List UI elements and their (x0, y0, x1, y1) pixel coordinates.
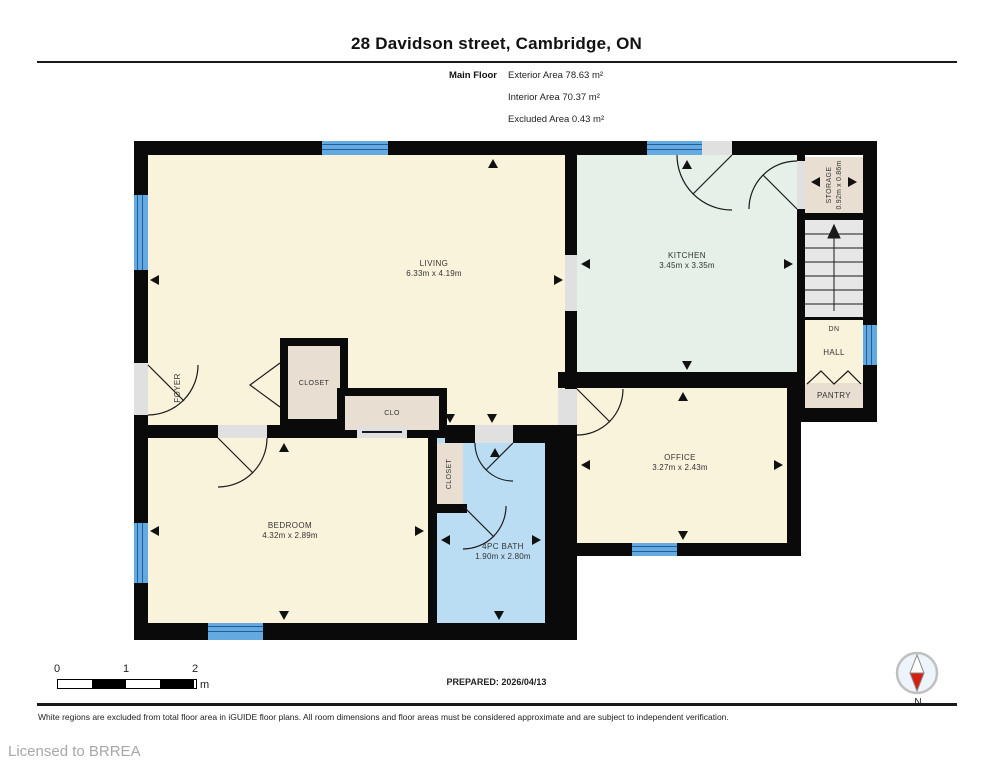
room-label-closet: CLOSET (289, 379, 339, 389)
room-label-living: LIVING 6.33m x 4.19m (364, 259, 504, 279)
plan-symbols-svg (134, 141, 877, 640)
room-name: BEDROOM (220, 521, 360, 531)
label-dn: DN (805, 325, 863, 335)
room-label-bedroom: BEDROOM 4.32m x 2.89m (220, 521, 360, 541)
room-name: STORAGE (825, 161, 835, 210)
room-label-office: OFFICE 3.27m x 2.43m (610, 453, 750, 473)
interior-area: Interior Area 70.37 m² (508, 92, 808, 103)
room-name: PANTRY (799, 391, 869, 401)
room-name: KITCHEN (617, 251, 757, 261)
room-name: LIVING (364, 259, 504, 269)
door-arcs (148, 155, 861, 549)
floor-label: Main Floor (0, 70, 497, 81)
disclaimer-text: White regions are excluded from total fl… (38, 712, 968, 722)
room-label-hall: HALL (805, 348, 863, 358)
room-label-foyer: FOYER (173, 373, 183, 403)
header-divider (37, 61, 957, 63)
room-name: OFFICE (610, 453, 750, 463)
room-name: 4PC BATH (433, 542, 573, 552)
room-dims: 3.45m x 3.35m (617, 261, 757, 271)
room-name: DN (805, 325, 863, 335)
room-name: HALL (805, 348, 863, 358)
floorplan: LIVING 6.33m x 4.19m KITCHEN 3.45m x 3.3… (134, 141, 877, 640)
room-dims: 1.90m x 2.80m (433, 552, 573, 562)
floorplan-page: 28 Davidson street, Cambridge, ON Main F… (0, 0, 993, 768)
stairs-direction-arrow (828, 225, 840, 238)
page-title: 28 Davidson street, Cambridge, ON (0, 34, 993, 54)
room-name: FOYER (173, 373, 183, 403)
room-label-clo: CLO (350, 409, 434, 419)
compass-icon (894, 650, 940, 696)
room-label-bath: 4PC BATH 1.90m x 2.80m (433, 542, 573, 562)
exterior-area: Exterior Area 78.63 m² (508, 70, 808, 81)
room-name: CLOSET (445, 459, 455, 489)
pantry-bifold-door (807, 371, 861, 384)
room-name: CLO (350, 409, 434, 419)
room-dims: 4.32m x 2.89m (220, 531, 360, 541)
scale-label-2: 2 (185, 663, 205, 675)
room-label-pantry: PANTRY (799, 391, 869, 401)
footer-divider (37, 703, 957, 706)
closet-bifold-door (250, 363, 280, 407)
room-label-bath-closet: CLOSET (445, 459, 455, 489)
stairs (805, 225, 863, 311)
room-name: CLOSET (289, 379, 339, 389)
license-text: Licensed to BRREA (8, 743, 141, 760)
room-label-storage: STORAGE 0.92m x 0.86m (825, 161, 845, 210)
room-dims: 0.92m x 0.86m (835, 161, 845, 210)
prepared-date: PREPARED: 2026/04/13 (0, 677, 993, 687)
scale-label-1: 1 (116, 663, 136, 675)
room-dims: 6.33m x 4.19m (364, 269, 504, 279)
room-label-kitchen: KITCHEN 3.45m x 3.35m (617, 251, 757, 271)
excluded-area: Excluded Area 0.43 m² (508, 114, 808, 125)
room-dims: 3.27m x 2.43m (610, 463, 750, 473)
scale-label-0: 0 (47, 663, 67, 675)
